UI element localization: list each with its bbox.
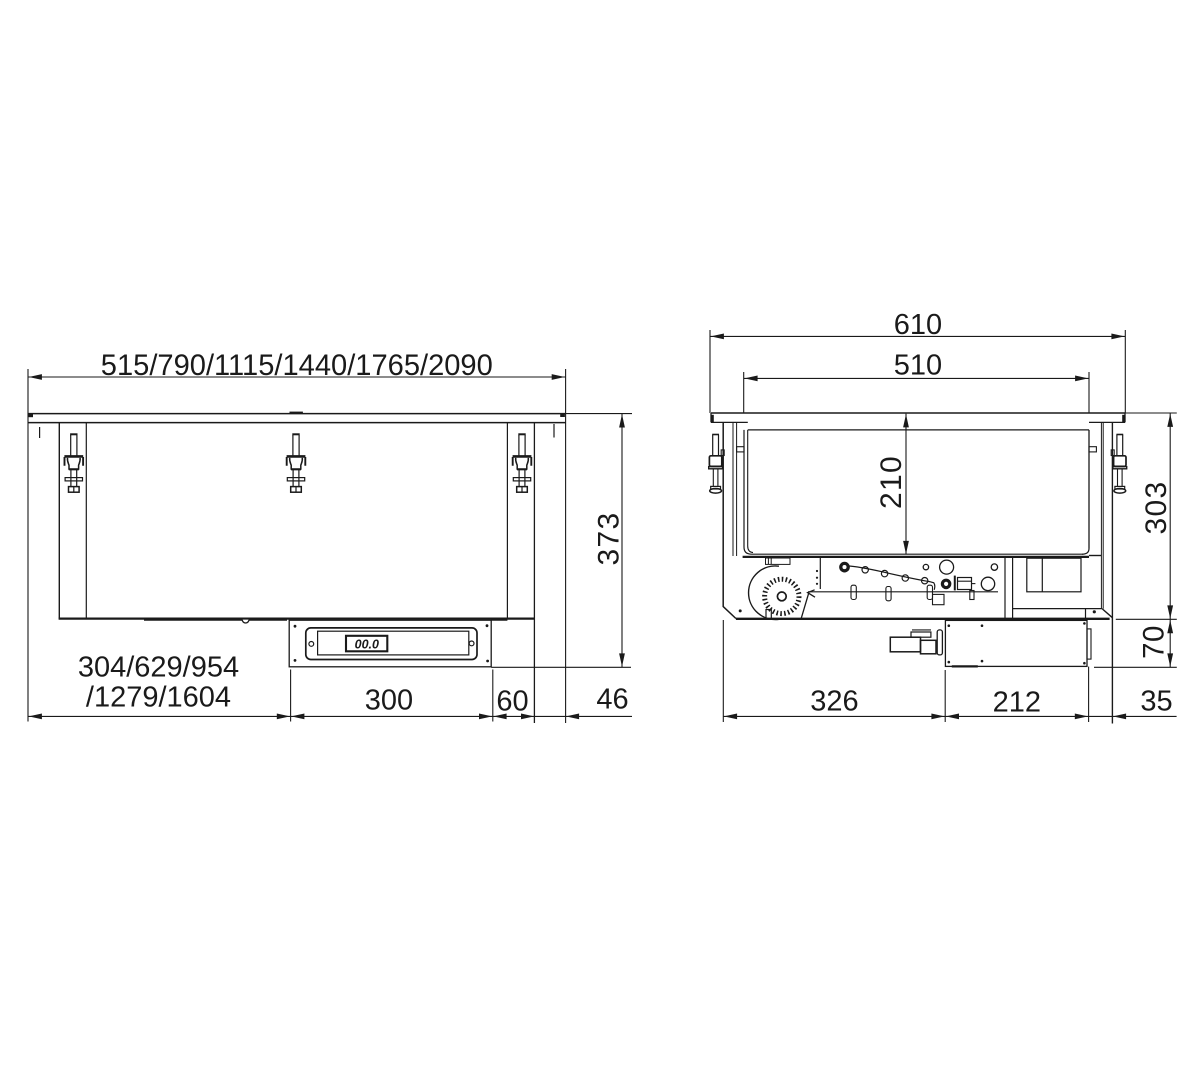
svg-text:373: 373 — [593, 512, 626, 566]
svg-text:60: 60 — [496, 686, 528, 718]
svg-text:212: 212 — [993, 687, 1041, 719]
svg-text:00.0: 00.0 — [355, 637, 379, 651]
svg-text:46: 46 — [596, 684, 628, 716]
svg-text:304/629/954: 304/629/954 — [78, 652, 239, 684]
svg-text:70: 70 — [1138, 625, 1171, 659]
svg-text:510: 510 — [894, 350, 942, 382]
svg-text:35: 35 — [1140, 686, 1172, 718]
svg-text:210: 210 — [875, 455, 908, 509]
svg-text:300: 300 — [365, 685, 413, 717]
svg-text:610: 610 — [894, 309, 942, 341]
svg-text:515/790/1115/1440/1765/2090: 515/790/1115/1440/1765/2090 — [101, 349, 493, 382]
svg-text:303: 303 — [1140, 481, 1173, 535]
svg-text:326: 326 — [810, 686, 858, 718]
svg-text:/1279/1604: /1279/1604 — [86, 682, 231, 714]
